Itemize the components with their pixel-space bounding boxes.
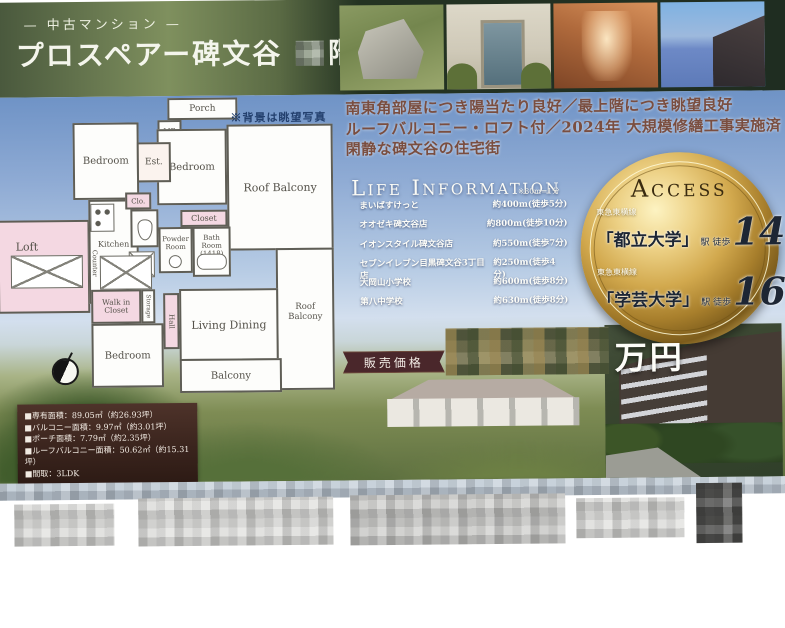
sink-icon — [169, 255, 182, 268]
header-band: — 中古マンション — プロスペアー碑文谷階 — [0, 0, 785, 98]
life-info-row: セブンイレブン目黒碑文谷3丁目店約250m(徒歩4分) — [360, 255, 568, 276]
place-name: まいばすけっと — [359, 199, 419, 212]
bathtub-icon — [197, 254, 227, 270]
place-distance: 約630m(徒歩8分) — [493, 294, 568, 307]
access-medal: Access 東急東横線 「都立大学」 駅 徒歩 14 分 東急東横線 「学芸大… — [580, 151, 780, 345]
station-name: 「学芸大学」 — [597, 285, 699, 311]
room-bedroom-bottom: Bedroom — [91, 323, 164, 388]
place-distance: 約400m(徒歩5分) — [493, 197, 568, 210]
room-hall: Hall — [163, 293, 180, 349]
room-roof-balcony-top: Roof Balcony — [227, 124, 334, 251]
room-porch: Porch — [167, 97, 237, 120]
room-label: Walk in Closet — [93, 298, 139, 315]
room-label: Storage — [145, 294, 152, 318]
footer-redacted-logo — [696, 483, 743, 543]
photo-stone-sign — [339, 4, 444, 90]
station-main: 「都立大学」 駅 徒歩 14 分 — [596, 216, 766, 251]
room-closet: Closet — [180, 210, 227, 227]
catch-copy: 南東角部屋につき陽当たり良好／最上階につき眺望良好 ルーフバルコニー・ロフト付／… — [345, 94, 781, 160]
walk-label: 駅 徒歩 — [701, 235, 731, 248]
place-name: イオンスタイル碑文谷店 — [360, 237, 453, 250]
room-label: Est. — [145, 157, 163, 167]
station-row: 東急東横線 「学芸大学」 駅 徒歩 16 分 — [597, 265, 767, 311]
room-walkin-closet: Walk in Closet — [91, 289, 141, 323]
compass-icon — [52, 358, 79, 385]
footer-redacted-block — [576, 497, 684, 538]
room-label: Loft — [16, 240, 39, 253]
photo-roof-terrace — [660, 1, 765, 87]
life-info-row: オオゼキ碑文谷店約800m(徒歩10分) — [359, 217, 567, 238]
catch-copy-line2: ルーフバルコニー・ロフト付／2024年 大規模修繕工事実施済 — [345, 115, 781, 140]
room-label: Roof Balcony — [243, 180, 316, 194]
room-label: Closet — [191, 214, 217, 223]
room-storage: Storage — [141, 289, 155, 323]
terrace-building-shape — [712, 15, 765, 86]
station-row: 東急東横線 「都立大学」 駅 徒歩 14 分 — [596, 205, 766, 251]
station-main: 「学芸大学」 駅 徒歩 16 分 — [597, 276, 767, 311]
room-balcony: Balcony — [180, 358, 282, 393]
detail-item: ■ルーフバルコニー面積：50.62㎡（約15.31坪） — [25, 444, 191, 469]
place-name: オオゼキ碑文谷店 — [359, 218, 427, 231]
room-closet-small: Clo. — [125, 192, 151, 209]
walk-minutes: 14 — [732, 216, 785, 247]
walk-label: 駅 徒歩 — [701, 295, 731, 308]
house-wall-shape — [387, 397, 579, 427]
lobby-light-shape — [581, 11, 632, 81]
place-distance: 約550m(徒歩7分) — [493, 236, 568, 249]
room-label: Porch — [189, 104, 215, 114]
property-details-box: ■専有面積：89.05㎡（約26.93坪） ■バルコニー面積：9.97㎡（約3.… — [17, 403, 198, 486]
room-label: Kitchen — [98, 240, 129, 249]
price-unit: 万円 — [615, 332, 685, 379]
life-info-row: イオンスタイル碑文谷店約550m(徒歩7分) — [360, 236, 568, 257]
room-label: Bedroom — [105, 350, 151, 361]
floor-number-redacted — [296, 41, 324, 66]
detail-item: ■バルコニー面積：9.97㎡（約3.01坪） — [24, 421, 190, 434]
detail-item: ■間取：3LDK — [25, 467, 191, 480]
plant-shape — [521, 62, 551, 88]
counter-symbol — [100, 255, 152, 289]
room-label: Bedroom — [169, 161, 215, 172]
access-title: Access — [580, 173, 778, 203]
stove-icon — [90, 204, 114, 232]
plan-note: ※背景は眺望写真 — [230, 109, 326, 126]
station-name: 「都立大学」 — [596, 225, 698, 251]
room-label: Powder Room — [161, 235, 191, 251]
place-name: 大岡山小学校 — [360, 276, 411, 288]
footer-redacted-block — [350, 493, 565, 545]
photo-entrance-gate — [446, 3, 551, 89]
photo-strip — [339, 1, 765, 90]
life-info-row: まいばすけっと約400m(徒歩5分) — [359, 197, 567, 218]
building-title: プロスペアー碑文谷階 — [16, 31, 359, 74]
room-roof-balcony-side: Roof Balcony — [276, 248, 335, 391]
life-info-row: 第八中学校約630m(徒歩8分) — [360, 294, 568, 315]
place-name: 第八中学校 — [360, 295, 403, 307]
catch-copy-line3: 閑静な碑文谷の住宅街 — [346, 135, 782, 160]
price-redacted — [445, 327, 608, 376]
life-information-list: まいばすけっと約400m(徒歩5分) オオゼキ碑文谷店約800m(徒歩10分) … — [359, 197, 568, 315]
entrance-door-shape — [481, 20, 526, 88]
room-label: Counter — [91, 250, 99, 277]
building-name: プロスペアー碑文谷 — [16, 37, 283, 73]
walk-minutes: 16 — [733, 276, 785, 307]
room-label: Roof Balcony — [278, 302, 332, 323]
place-distance: 約600m(徒歩8分) — [493, 275, 568, 288]
room-label: Hall — [167, 314, 175, 329]
room-label: Balcony — [211, 370, 251, 381]
plant-shape — [447, 63, 477, 89]
room-bedroom-top: Bedroom — [72, 122, 139, 200]
neighborhood-house — [379, 378, 587, 432]
room-entrance: Est. — [137, 142, 171, 182]
price-ribbon: 販売価格 — [343, 351, 445, 374]
stone-monument-shape — [358, 19, 425, 80]
room-living-dining: Living Dining — [179, 288, 279, 361]
room-label: Bedroom — [83, 156, 129, 167]
footer-redacted-block — [138, 497, 333, 547]
property-category: — 中古マンション — — [23, 13, 181, 34]
counter-label: Counter — [91, 250, 99, 277]
footer-redacted-block — [14, 504, 114, 547]
room-label: Living Dining — [191, 318, 266, 332]
place-distance: 約800m(徒歩10分) — [487, 217, 568, 230]
life-information-note: ※80m=1分 — [518, 185, 560, 196]
room-label: Clo. — [131, 197, 145, 205]
photo-entrance-hall — [553, 2, 658, 88]
flyer: — 中古マンション — プロスペアー碑文谷階 Porch MB Bedroom … — [0, 0, 785, 564]
price-label: 販売価格 — [364, 353, 424, 371]
loft-window-symbol — [11, 255, 83, 289]
